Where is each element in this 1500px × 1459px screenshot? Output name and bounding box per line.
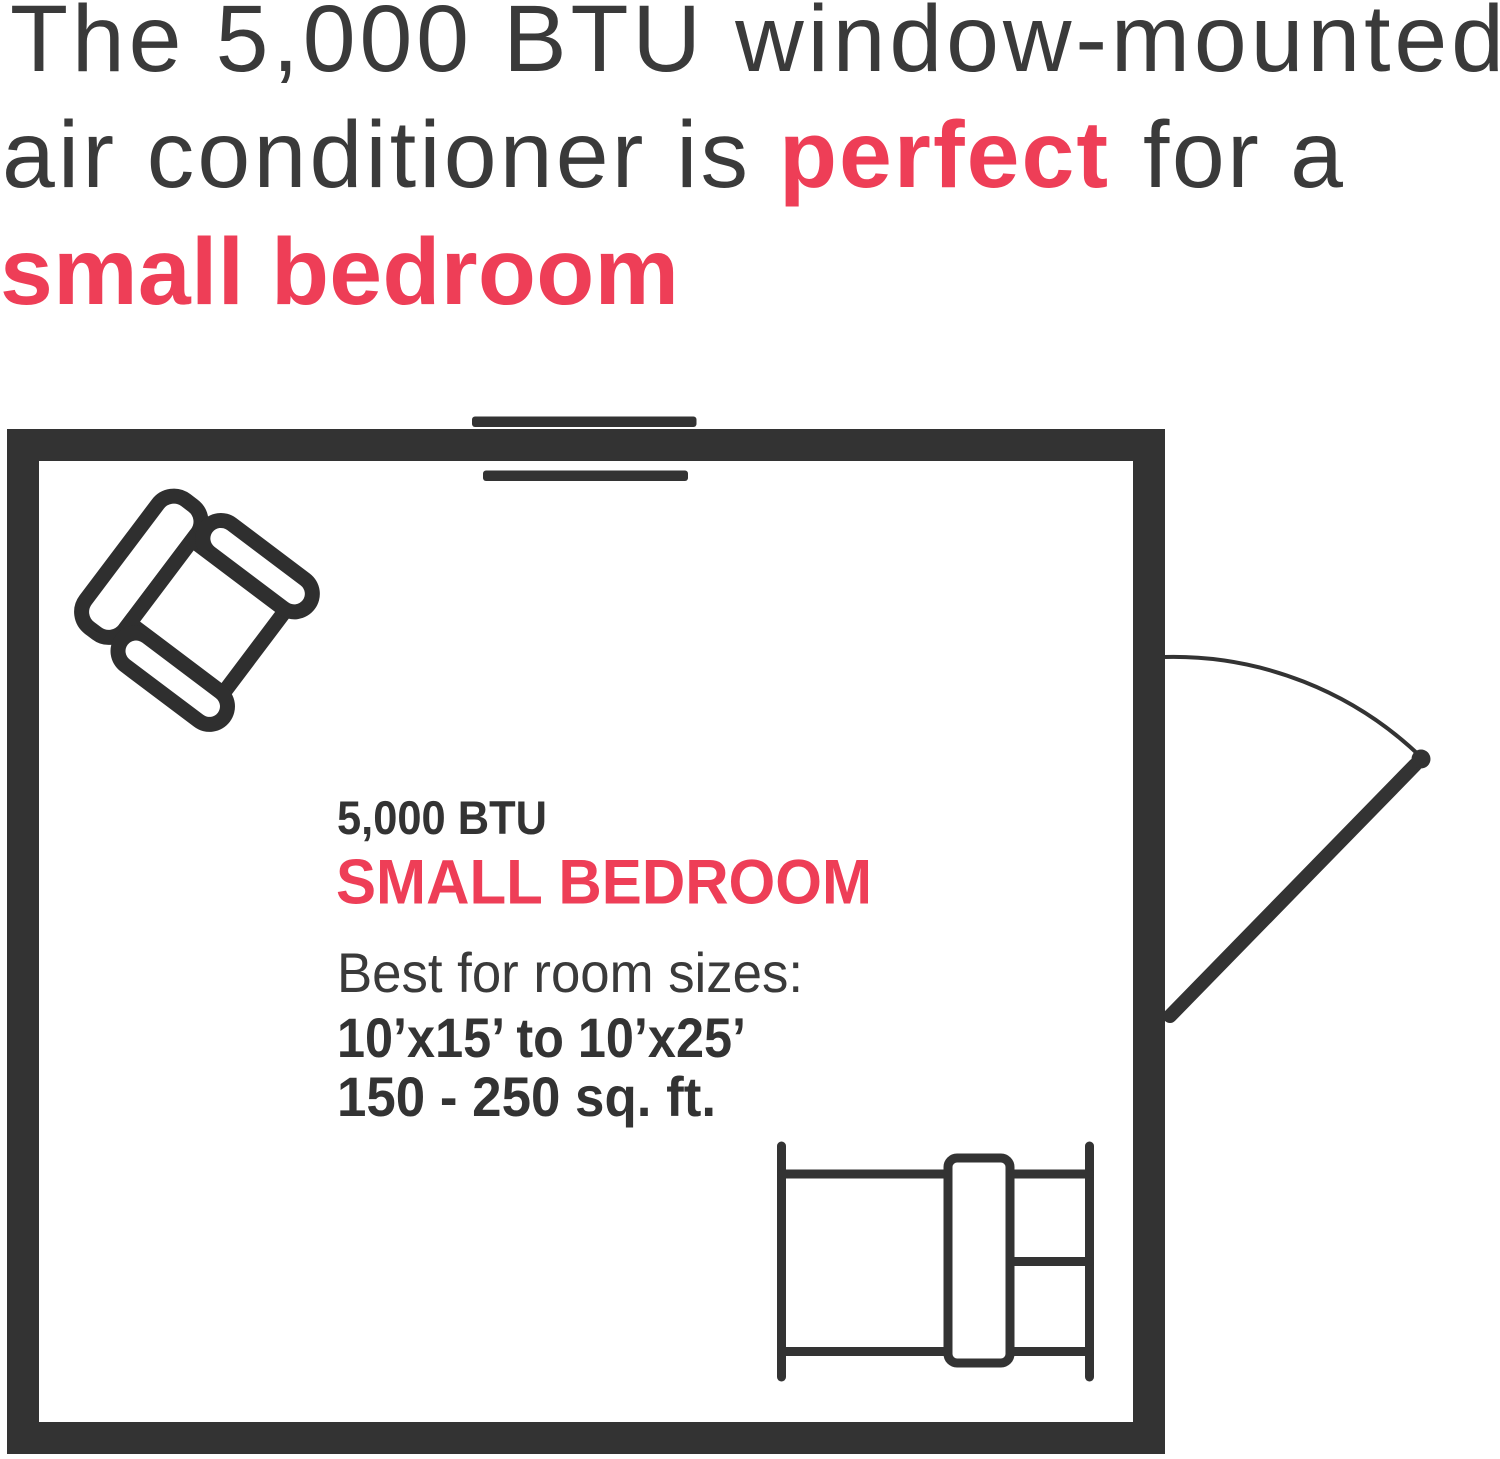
- svg-text:10’x15’ to 10’x25’: 10’x15’ to 10’x25’: [337, 1006, 746, 1069]
- svg-text:air conditioner is: air conditioner is: [2, 102, 748, 208]
- svg-text:The 5,000 BTU window-mounted: The 5,000 BTU window-mounted: [10, 0, 1500, 92]
- svg-text:for a: for a: [1143, 102, 1343, 208]
- svg-text:150 - 250 sq. ft.: 150 - 250 sq. ft.: [337, 1065, 716, 1128]
- svg-text:small bedroom: small bedroom: [0, 219, 679, 325]
- svg-text:Best for room sizes:: Best for room sizes:: [337, 941, 803, 1004]
- svg-text:perfect: perfect: [779, 102, 1108, 208]
- svg-text:5,000 BTU: 5,000 BTU: [337, 791, 547, 844]
- svg-text:SMALL BEDROOM: SMALL BEDROOM: [336, 848, 872, 918]
